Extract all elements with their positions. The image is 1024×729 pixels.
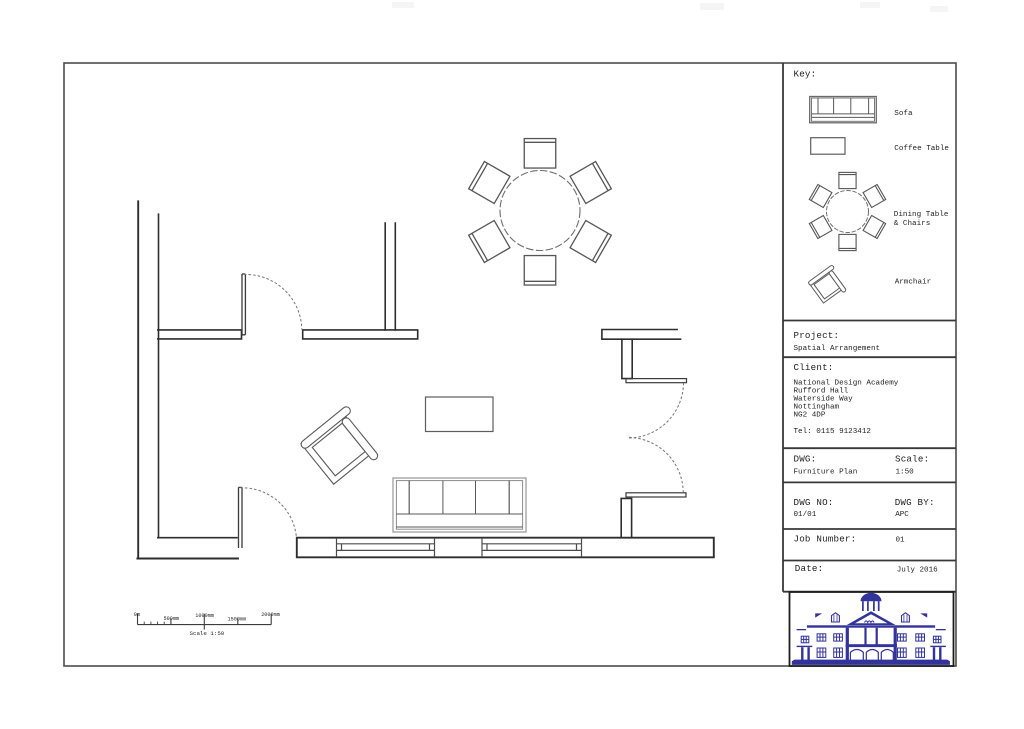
svg-text:Armchair: Armchair bbox=[895, 278, 931, 286]
svg-text:Tel: 0115 9123412: Tel: 0115 9123412 bbox=[794, 428, 872, 436]
svg-text:& Chairs: & Chairs bbox=[894, 220, 930, 228]
svg-text:Waterside Way: Waterside Way bbox=[794, 396, 854, 404]
svg-text:Key:: Key: bbox=[794, 68, 817, 79]
svg-text:NG2 4DP: NG2 4DP bbox=[794, 412, 826, 420]
svg-text:Furniture Plan: Furniture Plan bbox=[794, 468, 858, 476]
svg-text:DWG NO:: DWG NO: bbox=[794, 497, 834, 508]
svg-text:Spatial Arrangement: Spatial Arrangement bbox=[794, 345, 881, 353]
svg-text:Scale:: Scale: bbox=[895, 454, 929, 465]
svg-text:Client:: Client: bbox=[794, 362, 834, 373]
svg-text:DWG BY:: DWG BY: bbox=[895, 497, 935, 508]
svg-text:Scale 1:50: Scale 1:50 bbox=[190, 630, 225, 637]
svg-text:1500mm: 1500mm bbox=[228, 616, 247, 622]
svg-text:1:50: 1:50 bbox=[896, 468, 915, 476]
svg-text:01: 01 bbox=[896, 536, 906, 544]
svg-text:Coffee Table: Coffee Table bbox=[894, 145, 949, 153]
svg-text:National Design Academy: National Design Academy bbox=[794, 380, 899, 388]
svg-text:Project:: Project: bbox=[794, 330, 840, 341]
svg-text:1000mm: 1000mm bbox=[195, 613, 214, 619]
svg-text:500mm: 500mm bbox=[164, 616, 180, 622]
svg-text:0m: 0m bbox=[134, 612, 140, 618]
svg-text:01/01: 01/01 bbox=[794, 511, 817, 519]
svg-text:Date:: Date: bbox=[795, 563, 824, 574]
svg-text:Nottingham: Nottingham bbox=[794, 404, 840, 412]
svg-text:July 2016: July 2016 bbox=[897, 566, 938, 574]
svg-text:Dining Table: Dining Table bbox=[894, 211, 949, 219]
svg-text:DWG:: DWG: bbox=[794, 454, 817, 465]
svg-text:2000mm: 2000mm bbox=[261, 612, 280, 618]
svg-text:Job Number:: Job Number: bbox=[794, 533, 857, 544]
svg-text:Rufford Hall: Rufford Hall bbox=[794, 388, 849, 396]
svg-text:APC: APC bbox=[895, 511, 909, 519]
svg-text:Sofa: Sofa bbox=[894, 110, 913, 118]
